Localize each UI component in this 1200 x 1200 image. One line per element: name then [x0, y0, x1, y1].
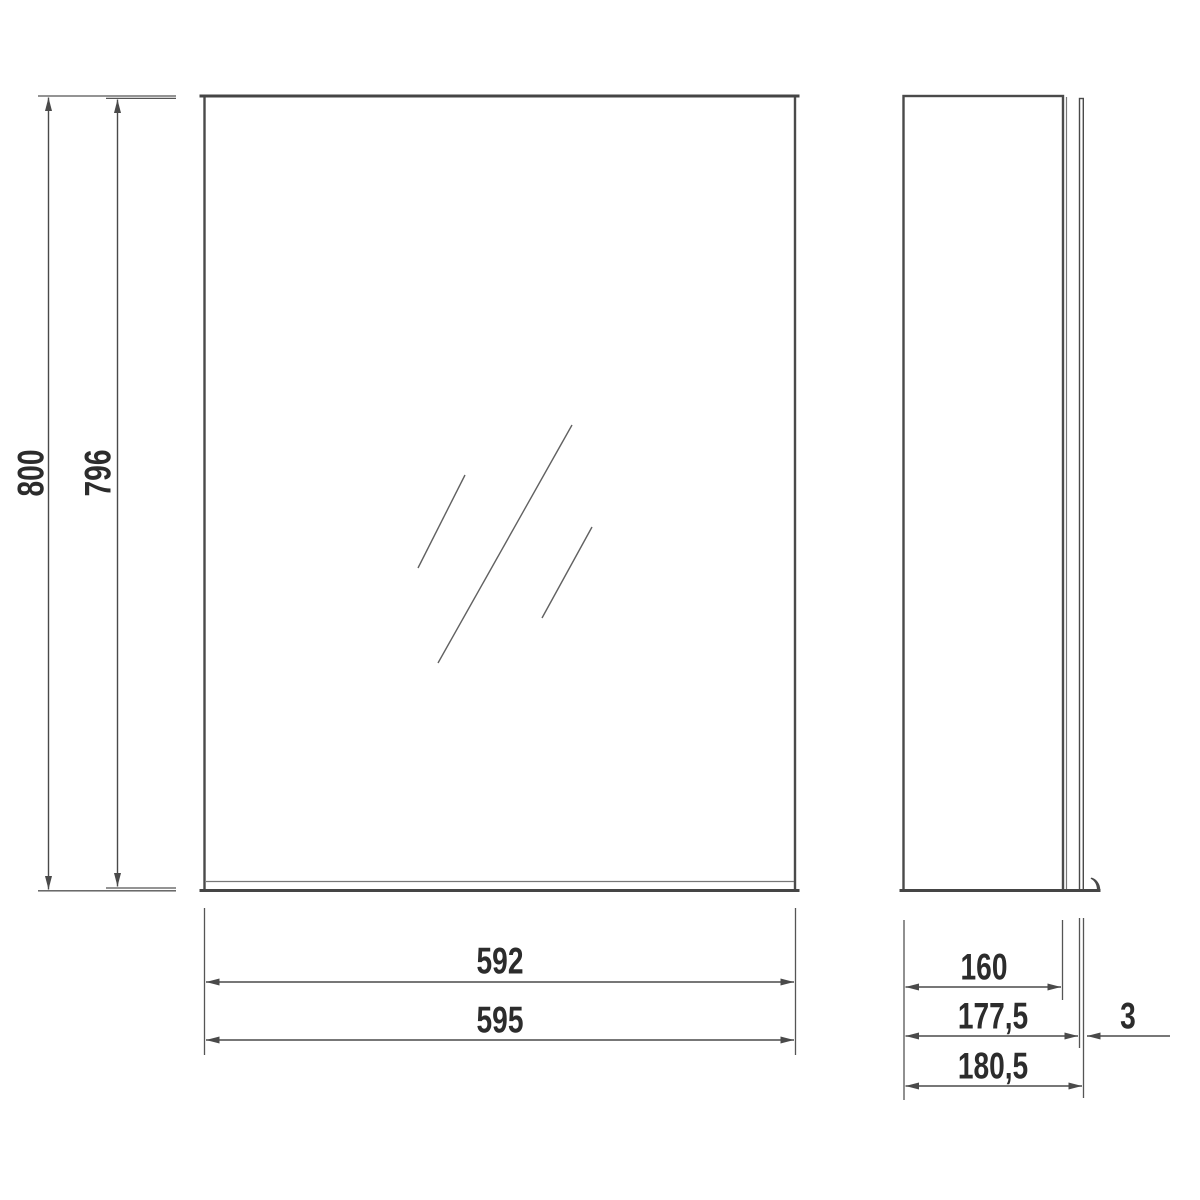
dim-label-mirror-height: 796	[80, 450, 117, 497]
dim-label-door-thickness: 3	[1120, 998, 1136, 1035]
dim-label-body-depth: 160	[961, 949, 1008, 986]
front-view	[200, 96, 800, 891]
front-view-cabinet-outline	[205, 96, 796, 891]
dim-label-overall-width: 595	[477, 1002, 524, 1039]
side-view-body-outline	[904, 96, 1064, 891]
technical-drawing-canvas: 800 796 592 595 160 177,5 3 180,5	[0, 0, 1200, 1200]
side-view-bottom-hook-profile	[1091, 878, 1101, 890]
dim-label-mirror-width: 592	[477, 943, 524, 980]
side-view-mirror-door	[1080, 99, 1084, 891]
side-view	[900, 96, 1101, 891]
dim-label-depth-to-door-face: 177,5	[958, 998, 1028, 1035]
dim-label-overall-height: 800	[13, 450, 50, 497]
dim-label-overall-depth: 180,5	[958, 1048, 1028, 1085]
